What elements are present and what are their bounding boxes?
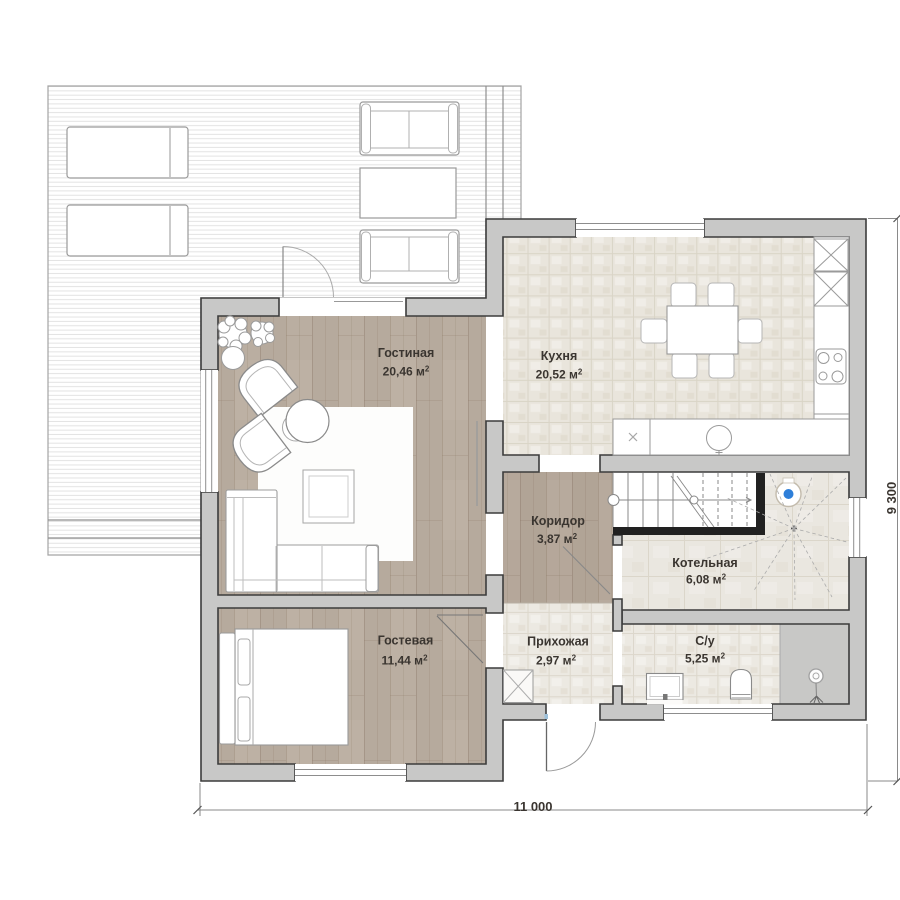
svg-text:Гостиная: Гостиная bbox=[378, 346, 435, 360]
svg-text:11 000: 11 000 bbox=[513, 799, 552, 814]
svg-text:20,52 м2: 20,52 м2 bbox=[536, 368, 583, 382]
svg-text:3,87 м2: 3,87 м2 bbox=[537, 532, 578, 546]
svg-text:20,46 м2: 20,46 м2 bbox=[383, 365, 430, 379]
svg-text:11,44 м2: 11,44 м2 bbox=[381, 654, 428, 668]
svg-text:2,97 м2: 2,97 м2 bbox=[536, 654, 577, 668]
svg-text:Кухня: Кухня bbox=[541, 349, 578, 363]
svg-text:5,25 м2: 5,25 м2 bbox=[685, 652, 726, 666]
svg-text:9 300: 9 300 bbox=[884, 482, 899, 515]
svg-text:Котельная: Котельная bbox=[672, 556, 737, 570]
svg-text:Прихожая: Прихожая bbox=[527, 635, 589, 649]
svg-text:С/у: С/у bbox=[695, 634, 715, 648]
svg-text:6,08 м2: 6,08 м2 bbox=[686, 573, 727, 587]
svg-text:Коридор: Коридор bbox=[531, 514, 585, 528]
svg-text:Гостевая: Гостевая bbox=[378, 634, 434, 648]
